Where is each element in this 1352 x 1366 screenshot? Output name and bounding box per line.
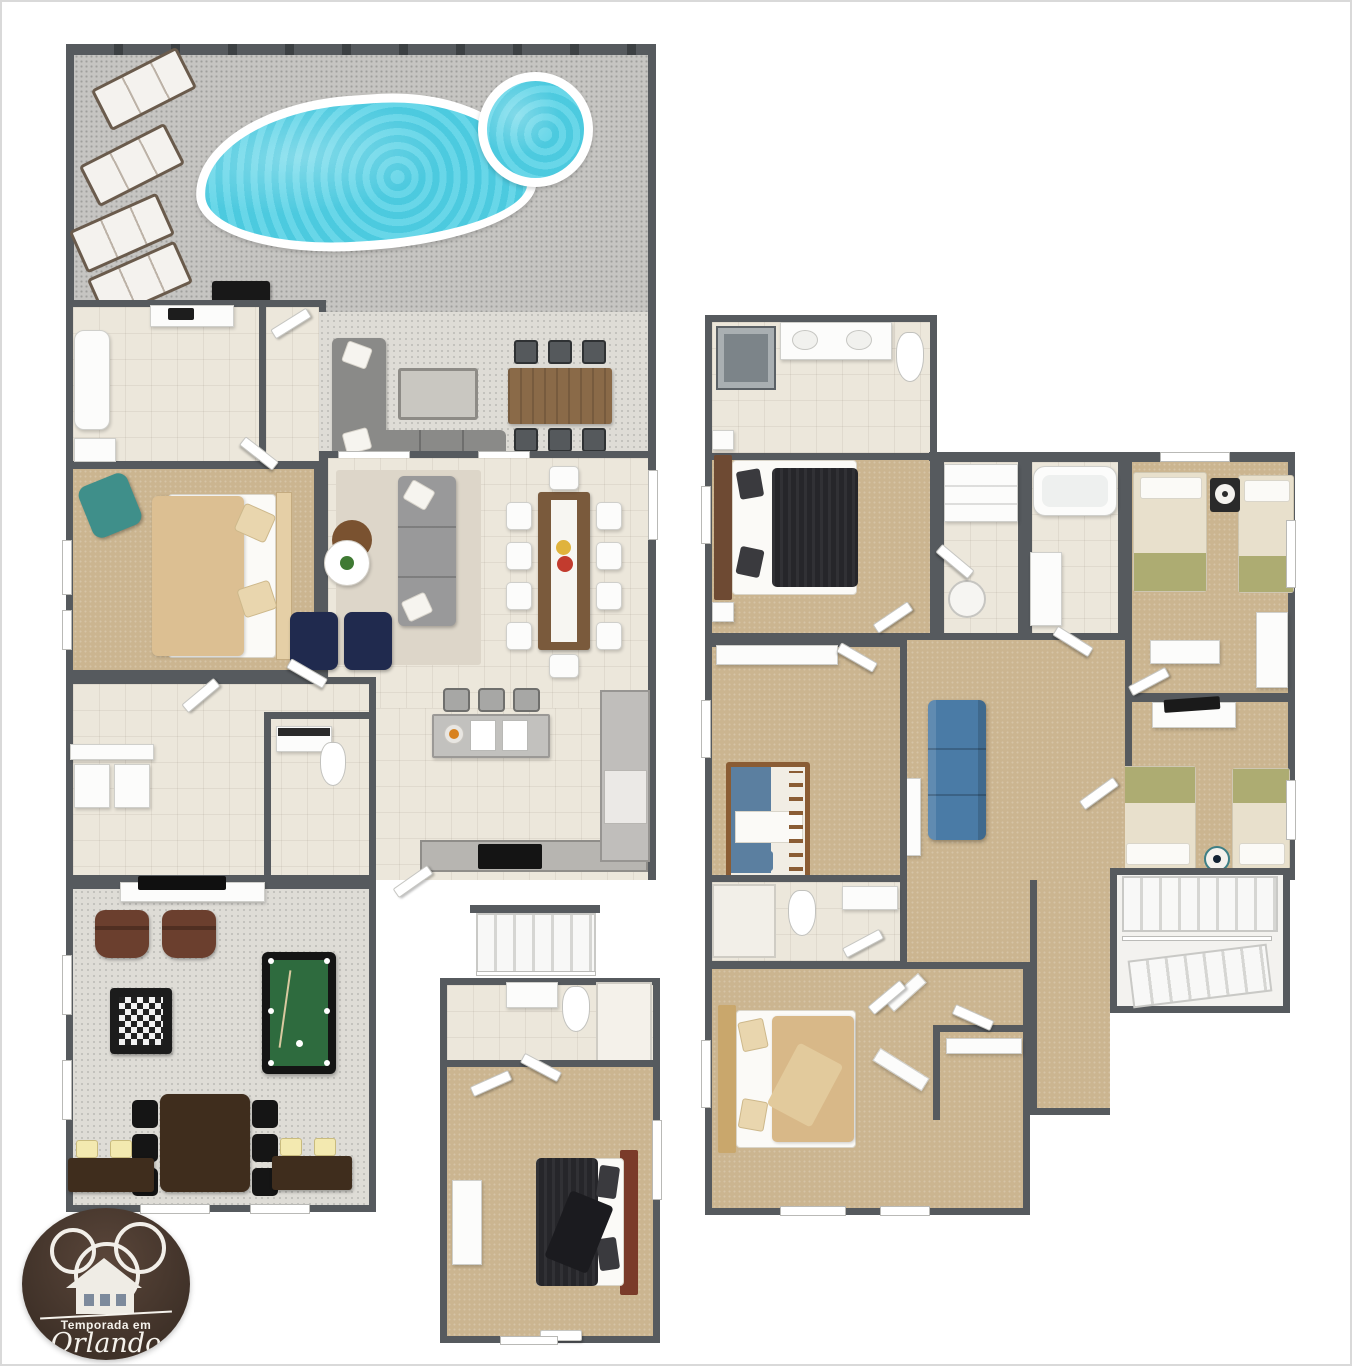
twin-bed — [1133, 472, 1207, 592]
flower-centerpiece — [556, 540, 571, 555]
tv — [138, 876, 226, 890]
island-sink — [502, 720, 528, 751]
outdoor-chair — [548, 340, 572, 364]
floor-plan-image: Temporada em Orlando — [0, 0, 1352, 1366]
leather-armchair — [162, 910, 216, 958]
twin-bed — [1118, 766, 1196, 870]
bathtub-2 — [1033, 466, 1117, 516]
guest-shower — [596, 982, 652, 1062]
window — [62, 1060, 72, 1120]
dryer — [114, 764, 150, 808]
laundry-counter — [70, 744, 154, 760]
guest-dresser — [452, 1180, 482, 1265]
sink-fixture — [168, 308, 194, 320]
brand-logo: Temporada em Orlando — [22, 1208, 190, 1360]
window — [140, 1204, 210, 1214]
house-window-icon — [116, 1294, 126, 1306]
cue-ball — [296, 1040, 303, 1047]
poker-table — [160, 1094, 250, 1192]
window — [62, 955, 72, 1015]
washer-2 — [948, 580, 986, 618]
twin-bed-pillow — [1126, 843, 1190, 865]
bathroom-wall — [264, 712, 271, 877]
dining-chair — [549, 654, 579, 678]
window — [1160, 452, 1230, 462]
twin-bed-olive-blanket — [1233, 769, 1289, 803]
window — [500, 1336, 558, 1345]
window — [701, 486, 711, 544]
master2-blanket — [772, 468, 858, 587]
sideboard — [68, 1158, 154, 1192]
staircase-upper-flight — [1122, 876, 1278, 932]
hall-toilet — [320, 742, 346, 786]
billiards-pocket — [268, 1060, 274, 1066]
table-lamp — [76, 1140, 98, 1158]
guest2-headboard — [718, 1005, 736, 1153]
window — [1286, 520, 1296, 588]
window — [701, 1040, 711, 1108]
dresser — [1256, 612, 1288, 688]
bath-vanity-3 — [842, 886, 898, 910]
poker-chair — [252, 1100, 278, 1128]
nightstand — [712, 430, 734, 450]
window — [62, 540, 72, 595]
window — [780, 1206, 846, 1216]
twin-bed-olive-blanket — [1134, 553, 1206, 591]
plant — [340, 556, 354, 570]
twin-bed-pillow — [1244, 480, 1290, 502]
leather-armchair — [95, 910, 149, 958]
master-bed-blanket — [152, 496, 244, 656]
dining-chair — [506, 542, 532, 570]
stair-wall — [470, 905, 600, 913]
twin-bed-olive-blanket — [1239, 556, 1293, 592]
decor-dot — [1222, 491, 1228, 497]
coffee-table — [398, 368, 478, 420]
dining-chair — [549, 466, 579, 490]
window — [62, 610, 72, 650]
window — [648, 470, 658, 540]
bar-stool — [443, 688, 470, 712]
bunk-bed — [726, 762, 810, 880]
billiards-pocket — [324, 1060, 330, 1066]
poker-chair — [132, 1100, 158, 1128]
guest-bath-vanity — [506, 982, 558, 1008]
closet-wall — [933, 1025, 940, 1120]
window — [250, 1204, 310, 1214]
master2-headboard — [714, 455, 732, 600]
twin-bed-olive-blanket — [1119, 767, 1195, 803]
washer — [74, 764, 110, 808]
house-window-icon — [100, 1294, 110, 1306]
outdoor-chair — [582, 340, 606, 364]
fruit — [449, 729, 459, 739]
bathroom-wall — [264, 712, 374, 719]
billiards-pocket — [324, 958, 330, 964]
vanity-sink — [792, 330, 818, 350]
navy-armchair — [344, 612, 392, 670]
outdoor-chair — [548, 428, 572, 452]
guest2-pillow — [738, 1098, 769, 1132]
dresser — [1150, 640, 1220, 664]
dining-chair — [596, 542, 622, 570]
window — [652, 1120, 662, 1200]
guest-toilet — [562, 986, 590, 1032]
vanity-sink — [846, 330, 872, 350]
billiards-pocket — [268, 958, 274, 964]
dining-chair — [506, 582, 532, 610]
stair-railing-2 — [1122, 936, 1272, 941]
shower-3 — [712, 884, 776, 958]
bathtub — [74, 330, 110, 430]
island-sink — [470, 720, 496, 751]
refrigerator — [604, 770, 647, 824]
wardrobe — [716, 645, 838, 665]
loft-console — [905, 778, 921, 856]
pool-fence — [66, 44, 656, 55]
table-lamp — [314, 1138, 336, 1156]
vanity-counter — [278, 728, 330, 736]
bunk-pillow — [739, 851, 773, 871]
mouse-ears-wall-decor — [1210, 478, 1240, 512]
dining-chair — [596, 582, 622, 610]
billiards-pocket — [268, 1008, 274, 1014]
bunk-ladder — [789, 771, 803, 871]
bar-stool — [478, 688, 505, 712]
window — [1286, 780, 1296, 840]
loft-sofa — [928, 700, 986, 840]
twin-bed — [1232, 768, 1290, 870]
toilet-2 — [896, 332, 924, 382]
outdoor-chair — [582, 428, 606, 452]
dining-chair — [596, 622, 622, 650]
shower-2 — [716, 326, 776, 390]
master2-pillow — [736, 468, 764, 500]
house-roof-icon — [66, 1258, 142, 1288]
table-lamp — [110, 1140, 132, 1158]
droid-eye — [1213, 855, 1221, 863]
cooktop — [478, 844, 542, 869]
outdoor-chair — [514, 428, 538, 452]
window — [701, 700, 711, 758]
toilet-3 — [788, 890, 816, 936]
stair-landing — [1030, 880, 1110, 1115]
outdoor-dining-table — [508, 368, 612, 424]
nightstand — [712, 602, 734, 622]
bar-stool — [513, 688, 540, 712]
shower — [74, 438, 116, 462]
house-body-icon — [76, 1288, 134, 1314]
sideboard — [272, 1156, 352, 1190]
chess-board — [119, 997, 163, 1045]
chess-table — [110, 988, 172, 1054]
closet-shelves — [944, 464, 1018, 522]
billiards-pocket — [324, 1008, 330, 1014]
closet-shelf — [946, 1038, 1022, 1054]
tub-bath-vanity — [1030, 552, 1062, 626]
house-window-icon — [84, 1294, 94, 1306]
flower-centerpiece — [557, 556, 573, 572]
dining-chair — [596, 502, 622, 530]
staircase-first-floor — [476, 913, 596, 973]
tub-basin — [1042, 475, 1108, 507]
outdoor-chair — [514, 340, 538, 364]
spa — [478, 72, 593, 187]
table-lamp — [280, 1138, 302, 1156]
twin-bed-pillow — [1140, 477, 1202, 499]
dining-chair — [506, 502, 532, 530]
window — [880, 1206, 930, 1216]
stair-railing — [476, 971, 596, 976]
logo-wordmark: Orlando — [22, 1328, 190, 1359]
twin-bed-pillow — [1239, 843, 1285, 865]
dining-chair — [506, 622, 532, 650]
